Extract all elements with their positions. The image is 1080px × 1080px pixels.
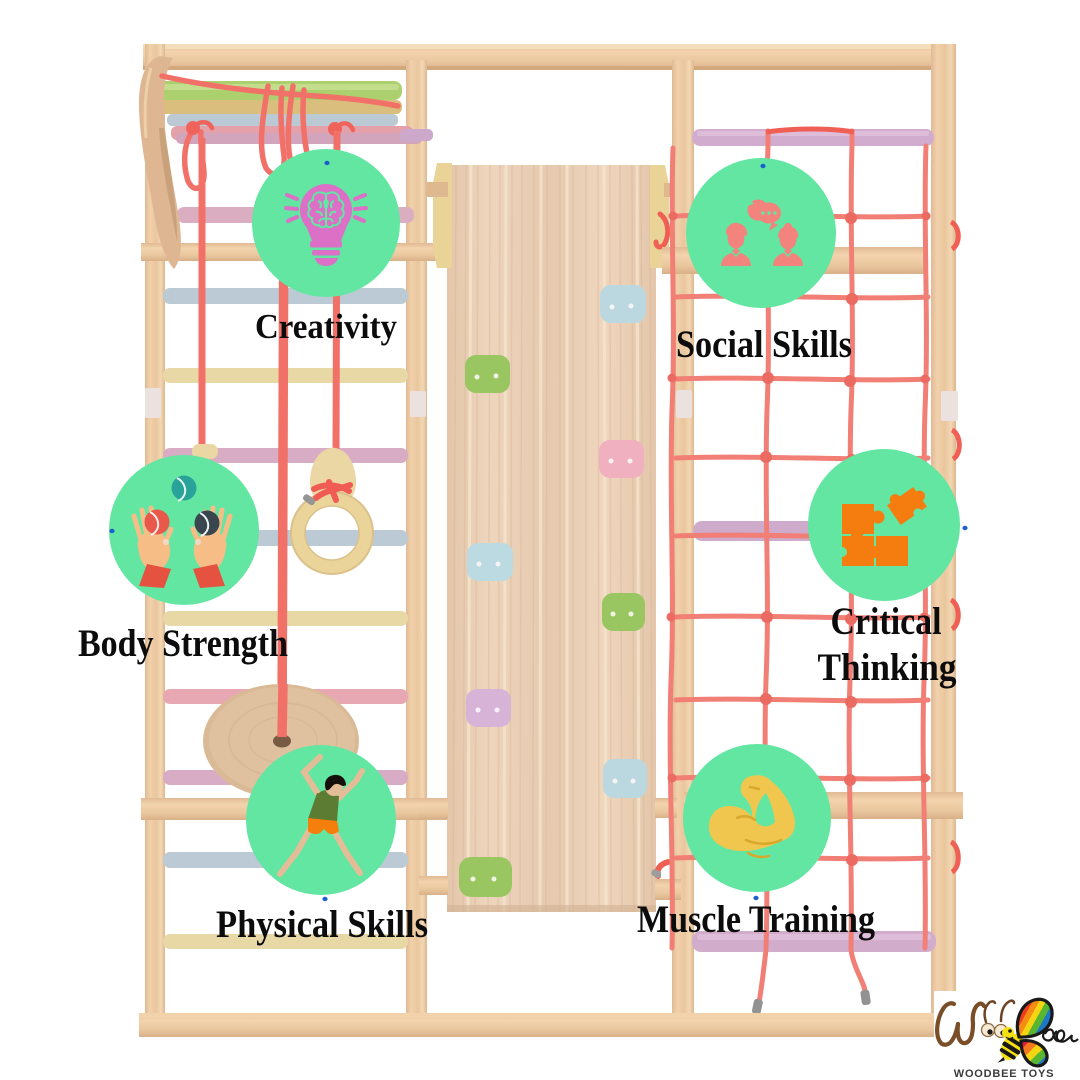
svg-text:Thinking: Thinking — [818, 646, 957, 689]
svg-text:Critical: Critical — [831, 600, 942, 643]
svg-text:Creativity: Creativity — [255, 307, 397, 346]
svg-text:WOODBEE TOYS: WOODBEE TOYS — [954, 1068, 1054, 1080]
svg-text:Body Strength: Body Strength — [78, 622, 288, 665]
svg-text:Muscle Training: Muscle Training — [637, 898, 875, 941]
svg-text:Physical Skills: Physical Skills — [216, 903, 428, 946]
svg-text:Social Skills: Social Skills — [676, 323, 852, 366]
